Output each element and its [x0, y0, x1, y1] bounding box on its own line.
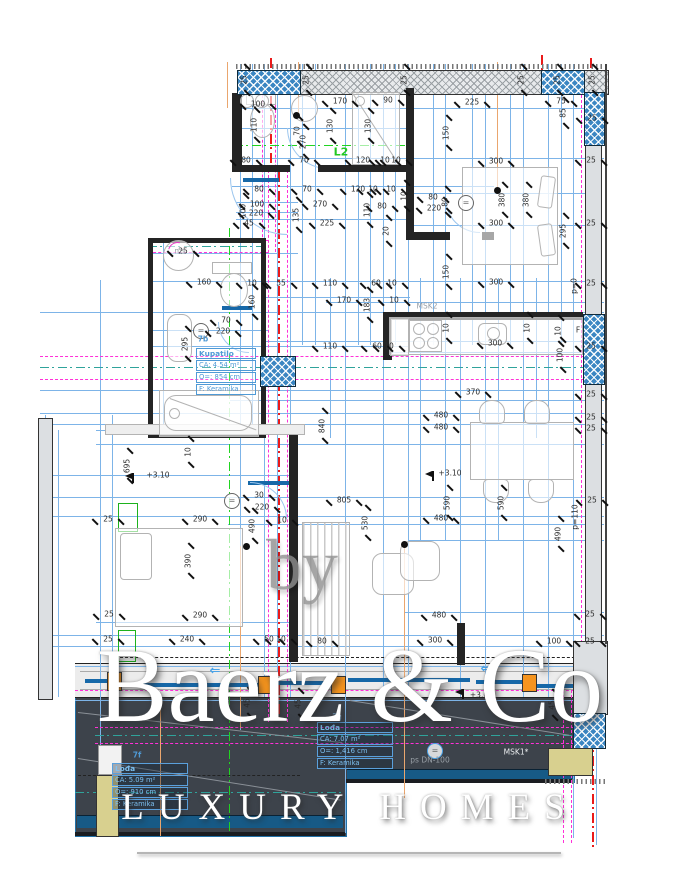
dimension-label: 25 — [587, 114, 597, 122]
tick-mark — [423, 427, 430, 434]
tick-mark — [372, 100, 379, 107]
dimension-label: 170 — [333, 97, 347, 105]
tick-mark — [575, 394, 582, 401]
dimension-label: 30 — [254, 491, 264, 499]
tick-mark — [234, 331, 241, 338]
room-area: CA: 4.54 m² — [196, 360, 256, 371]
tick-mark — [521, 64, 528, 71]
tick-mark — [576, 118, 583, 125]
tick-mark — [367, 221, 374, 228]
tick-mark — [592, 89, 599, 96]
tick-mark — [446, 312, 453, 319]
tick-mark — [507, 161, 514, 168]
tick-mark — [269, 104, 276, 111]
tick-mark — [118, 614, 125, 621]
room-perimeter: O=: 854 cm — [196, 372, 256, 383]
tick-mark — [185, 326, 192, 333]
dimension-label: 20 — [382, 226, 390, 236]
dimension-label: 25 — [586, 424, 596, 432]
tick-mark — [340, 189, 347, 196]
tick-mark — [186, 282, 193, 289]
dimension-label: 300 — [489, 157, 503, 165]
tick-mark — [233, 223, 240, 230]
tick-mark — [331, 204, 338, 211]
dimension-label: 25 — [586, 156, 596, 164]
dimension-label: 370 — [466, 388, 480, 396]
tick-mark — [575, 160, 582, 167]
dimension-label: 10 — [380, 156, 390, 164]
tick-mark — [600, 394, 607, 401]
dimension-label: 10 — [247, 279, 257, 287]
tick-mark — [557, 89, 564, 96]
tick-mark — [502, 182, 509, 189]
tick-mark — [244, 89, 251, 96]
tick-mark — [291, 189, 298, 196]
dimension-label: 290 — [193, 515, 207, 523]
tick-mark — [386, 215, 393, 222]
dimension-label: 25 — [585, 610, 595, 618]
dimension-label: 10 — [387, 279, 397, 287]
annotation-label: p=0 — [570, 278, 578, 294]
tick-mark — [273, 507, 280, 514]
dimension-label: 80 — [241, 156, 251, 164]
tick-mark — [326, 300, 333, 307]
watermark-brand: Baerz & Co — [0, 633, 700, 739]
tick-mark — [330, 137, 337, 144]
dimension-label: 25 — [103, 515, 113, 523]
tick-mark — [330, 108, 337, 115]
tick-mark — [316, 189, 323, 196]
tick-mark — [230, 160, 237, 167]
tick-mark — [182, 519, 189, 526]
tick-mark — [368, 108, 375, 115]
dimension-label: 220 — [216, 327, 230, 335]
dimension-label: 110 — [323, 342, 337, 350]
dimension-label: 530 — [361, 516, 369, 530]
dimension-label: 590 — [497, 496, 505, 510]
tick-mark — [303, 124, 310, 131]
annotation-label: p=110 — [571, 504, 579, 529]
tick-mark — [367, 316, 374, 323]
tick-mark — [322, 437, 329, 444]
tick-mark — [558, 545, 565, 552]
tick-mark — [365, 534, 372, 541]
tick-mark — [211, 519, 218, 526]
tick-mark — [211, 615, 218, 622]
tick-mark — [268, 189, 275, 196]
tick-mark — [182, 615, 189, 622]
tick-mark — [446, 283, 453, 290]
dimension-label: 25 — [587, 496, 597, 504]
tick-mark — [302, 204, 309, 211]
tick-mark — [404, 89, 411, 96]
dimension-label: 805 — [337, 496, 351, 504]
dimension-label: 695 — [123, 459, 131, 473]
tick-mark — [574, 614, 581, 621]
tick-mark — [526, 182, 533, 189]
annotation-label: ps DN-100 — [410, 756, 449, 764]
dimension-label: 90 — [383, 96, 393, 104]
tick-mark — [309, 223, 316, 230]
tick-mark — [185, 355, 192, 362]
tick-mark — [360, 283, 367, 290]
tick-mark — [244, 64, 251, 71]
watermark-underline — [137, 852, 561, 854]
dimension-label: 10 — [442, 323, 450, 333]
tick-mark — [351, 101, 358, 108]
dimension-label: 480 — [434, 423, 448, 431]
dimension-label: 160 — [248, 295, 256, 309]
tick-mark — [526, 211, 533, 218]
tick-mark — [296, 197, 303, 204]
tick-mark — [423, 415, 430, 422]
tick-mark — [391, 206, 398, 213]
dimension-label: 135 — [292, 208, 300, 222]
tick-mark — [405, 160, 412, 167]
tick-mark — [421, 615, 428, 622]
dimension-label: 10 — [389, 296, 399, 304]
tick-mark — [322, 408, 329, 415]
tick-mark — [313, 160, 320, 167]
tick-mark — [416, 208, 423, 215]
tick-mark — [502, 211, 509, 218]
tick-mark — [312, 283, 319, 290]
dimension-label: 300 — [489, 278, 503, 286]
room-name: Lođa — [112, 763, 188, 774]
tick-mark — [527, 337, 534, 344]
tick-mark — [558, 516, 565, 523]
dimension-label: 220 — [249, 209, 263, 217]
tick-mark — [483, 102, 490, 109]
dimension-label: 10 — [523, 323, 531, 333]
annotation-label: MSK2 — [417, 302, 438, 310]
annotation-label: MSK1* — [504, 748, 529, 756]
tick-mark — [501, 514, 508, 521]
dimension-label: 380 — [498, 193, 506, 207]
dimension-label: 10 — [368, 185, 378, 193]
tick-mark — [545, 101, 552, 108]
dimension-label: 70 — [299, 156, 309, 164]
tick-mark — [446, 115, 453, 122]
dimension-label: 80 — [441, 197, 449, 207]
dimension-label: 150 — [442, 126, 450, 140]
tick-mark — [127, 477, 134, 484]
tick-mark — [288, 160, 295, 167]
tick-mark — [188, 543, 195, 550]
dimension-label: 10 — [386, 185, 396, 193]
room-floor: F: Keramika — [317, 758, 393, 769]
dimension-label: 45 — [244, 219, 254, 227]
dimension-label: 70 — [302, 185, 312, 193]
annotation-label: F — [576, 326, 580, 334]
watermark-tagline: LUXURY HOMES — [0, 786, 700, 829]
tick-mark — [446, 337, 453, 344]
dimension-label: 590 — [443, 496, 451, 510]
dimension-label: 25 — [586, 390, 596, 398]
annotation-label: +3.10 — [147, 471, 170, 479]
tick-mark — [338, 223, 345, 230]
dimension-label: 480 — [434, 411, 448, 419]
dimension-label: 60 — [371, 279, 381, 287]
tick-mark — [557, 64, 564, 71]
room-info-bathroom: KupatiloCA: 4.54 m²O=: 854 cmF: Keramika — [196, 348, 256, 396]
floor-plan-canvas: = = = = 10017090225758511013013015070270… — [0, 0, 700, 890]
tick-mark — [397, 100, 404, 107]
tick-mark — [600, 223, 607, 230]
tick-mark — [312, 346, 319, 353]
tick-mark — [386, 240, 393, 247]
tick-mark — [601, 118, 608, 125]
tick-mark — [423, 518, 430, 525]
dimension-label: 120 — [356, 156, 370, 164]
tick-mark — [368, 137, 375, 144]
tick-mark — [452, 415, 459, 422]
tick-mark — [258, 223, 265, 230]
tick-mark — [296, 226, 303, 233]
dimension-label: 25 — [240, 75, 248, 85]
room-area: CA: 5.09 m² — [112, 775, 188, 786]
dimension-label: 840 — [318, 419, 326, 433]
tick-mark — [446, 254, 453, 261]
tick-mark — [570, 101, 577, 108]
tick-mark — [478, 223, 485, 230]
tick-mark — [521, 89, 528, 96]
tick-mark — [445, 186, 452, 193]
dimension-label: 80 — [377, 202, 387, 210]
dimension-label: 25 — [553, 75, 561, 85]
dimension-label: 300 — [488, 339, 502, 347]
tick-mark — [378, 300, 385, 307]
dimension-label: 80 — [254, 185, 264, 193]
dimension-label: 25 — [586, 342, 596, 350]
tick-mark — [563, 213, 570, 220]
tick-mark — [599, 614, 606, 621]
dimension-label: 10 — [384, 342, 394, 350]
dimension-label: 300 — [489, 219, 503, 227]
tick-mark — [600, 160, 607, 167]
dimension-label: 100 — [250, 200, 264, 208]
tick-mark — [361, 346, 368, 353]
dimension-label: 150 — [442, 265, 450, 279]
tick-mark — [341, 346, 348, 353]
room-perimeter: O=: 1,416 cm — [317, 746, 393, 757]
tick-mark — [484, 392, 491, 399]
dimension-label: 100 — [251, 100, 265, 108]
tick-mark — [355, 500, 362, 507]
dimension-label: 295 — [559, 224, 567, 238]
annotation-label: ms — [174, 247, 185, 255]
tick-mark — [244, 507, 251, 514]
tick-mark — [558, 315, 565, 322]
tick-mark — [92, 519, 99, 526]
dimension-label: 25 — [517, 75, 525, 85]
dimension-label: 160 — [197, 278, 211, 286]
tick-mark — [501, 485, 508, 492]
dimension-label: 10 — [391, 156, 401, 164]
dimension-label: 100 — [556, 348, 564, 362]
tick-mark — [417, 197, 424, 204]
tick-mark — [575, 346, 582, 353]
tick-mark — [322, 101, 329, 108]
dimension-label: 25 — [586, 279, 596, 287]
tick-mark — [478, 161, 485, 168]
dimension-label: 75 — [556, 97, 566, 105]
tick-mark — [401, 283, 408, 290]
annotation-label: +3.10 — [439, 469, 462, 477]
tick-mark — [600, 417, 607, 424]
dimension-label: 10 — [400, 191, 408, 201]
tick-mark — [341, 283, 348, 290]
tick-mark — [326, 500, 333, 507]
watermark-by: by — [266, 524, 338, 607]
tick-mark — [188, 461, 195, 468]
tick-mark — [167, 251, 174, 258]
dimension-label: 220 — [255, 503, 269, 511]
dimension-label: 480 — [434, 514, 448, 522]
dimension-label: 225 — [320, 219, 334, 227]
tick-mark — [252, 537, 259, 544]
tick-mark — [188, 436, 195, 443]
dimension-label: 490 — [554, 527, 562, 541]
tick-mark — [601, 500, 608, 507]
tick-mark — [297, 115, 304, 122]
tick-mark — [478, 282, 485, 289]
tick-mark — [447, 485, 454, 492]
tick-mark — [267, 213, 274, 220]
dimension-label: 270 — [299, 135, 307, 149]
dimension-label: 110 — [250, 118, 258, 132]
dimension-label: 55 — [276, 279, 286, 287]
dimension-label: 10 — [277, 516, 287, 524]
dimension-label: 25 — [586, 219, 596, 227]
tick-mark — [306, 64, 313, 71]
tick-mark — [93, 614, 100, 621]
dimension-label: 10 — [184, 447, 192, 457]
tick-mark — [455, 392, 462, 399]
tick-mark — [215, 282, 222, 289]
tick-mark — [365, 505, 372, 512]
dimension-label: 85 — [559, 108, 567, 118]
tick-mark — [367, 287, 374, 294]
tick-mark — [404, 180, 411, 187]
tick-mark — [560, 366, 567, 373]
tick-mark — [446, 144, 453, 151]
dimension-label: 110 — [323, 279, 337, 287]
tick-mark — [403, 300, 410, 307]
tick-mark — [127, 448, 134, 455]
tick-mark — [600, 428, 607, 435]
tick-mark — [575, 223, 582, 230]
dimension-label: 60 — [372, 342, 382, 350]
dimension-label: 390 — [184, 554, 192, 568]
dimension-label: 110 — [363, 203, 371, 217]
dimension-label: 170 — [337, 296, 351, 304]
tick-mark — [575, 417, 582, 424]
annotation-label: 7b — [198, 335, 209, 343]
tick-mark — [188, 572, 195, 579]
dimension-label: 80 — [428, 193, 438, 201]
tick-mark — [404, 64, 411, 71]
dimension-label: 490 — [248, 519, 256, 533]
room-name: Kupatilo — [196, 348, 256, 359]
dimension-label: 480 — [432, 611, 446, 619]
dimension-label: 70 — [221, 316, 231, 324]
tick-mark — [355, 300, 362, 307]
dimension-label: 225 — [465, 98, 479, 106]
dimension-label: 183 — [363, 298, 371, 312]
tick-mark — [404, 205, 411, 212]
tick-mark — [507, 282, 514, 289]
tick-mark — [255, 160, 262, 167]
annotation-label: L2 — [334, 147, 349, 158]
tick-mark — [600, 346, 607, 353]
dimension-label: 25 — [302, 75, 310, 85]
tick-mark — [527, 312, 534, 319]
tick-mark — [575, 428, 582, 435]
dimension-label: 130 — [364, 119, 372, 133]
tick-mark — [306, 89, 313, 96]
tick-mark — [243, 495, 250, 502]
tick-mark — [592, 64, 599, 71]
tick-mark — [254, 136, 261, 143]
dimension-label: 295 — [181, 337, 189, 351]
tick-mark — [290, 283, 297, 290]
tick-mark — [450, 615, 457, 622]
dimension-label: 270 — [313, 200, 327, 208]
tick-mark — [345, 160, 352, 167]
tick-mark — [398, 346, 405, 353]
tick-mark — [117, 519, 124, 526]
tick-mark — [452, 518, 459, 525]
dimension-label: 130 — [326, 119, 334, 133]
annotation-label: 7f — [133, 751, 141, 759]
dimension-label: 25 — [104, 610, 114, 618]
tick-mark — [235, 320, 242, 327]
dimension-label: 10 — [554, 326, 562, 336]
tick-mark — [452, 427, 459, 434]
dimension-label: 25 — [588, 75, 596, 85]
dimension-label: 290 — [193, 611, 207, 619]
tick-mark — [563, 122, 570, 129]
tick-mark — [600, 283, 607, 290]
dimension-label: 100 — [239, 204, 247, 218]
tick-mark — [252, 313, 259, 320]
tick-mark — [240, 104, 247, 111]
dimension-label: 220 — [427, 204, 441, 212]
tick-mark — [268, 204, 275, 211]
tick-mark — [507, 223, 514, 230]
tick-mark — [268, 495, 275, 502]
dimension-label: 120 — [351, 185, 365, 193]
tick-mark — [236, 283, 243, 290]
tick-mark — [454, 102, 461, 109]
dimension-label: 25 — [400, 75, 408, 85]
room-floor: F: Keramika — [196, 384, 256, 395]
tick-mark — [477, 343, 484, 350]
tick-mark — [192, 251, 199, 258]
tick-mark — [506, 343, 513, 350]
dimension-label: 25 — [586, 413, 596, 421]
tick-mark — [563, 242, 570, 249]
dimension-label: 380 — [522, 193, 530, 207]
